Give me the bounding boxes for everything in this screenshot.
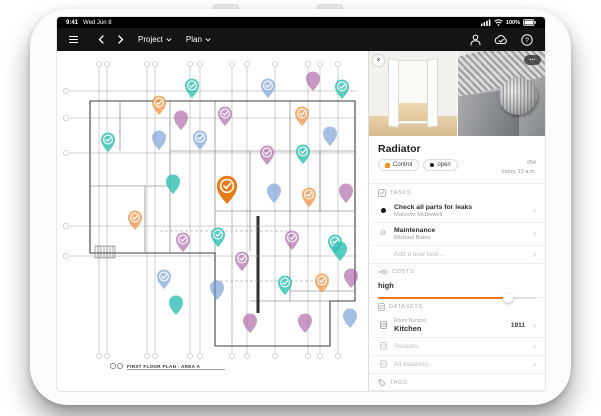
add-task-placeholder: Add a new task .. — [394, 251, 527, 258]
map-pin[interactable] — [298, 314, 312, 334]
open-tag-marker — [430, 163, 434, 167]
tasks-section-header: TASKS — [369, 183, 545, 200]
chevron-right-icon: › — [533, 250, 536, 259]
database-icon — [380, 342, 387, 350]
tags-heading: TAGS — [390, 380, 407, 386]
map-pin[interactable] — [128, 211, 142, 231]
task-assignee: Malcolm McDowell — [394, 212, 527, 218]
map-pin[interactable] — [302, 188, 316, 208]
cost-level-label: high — [369, 278, 545, 290]
user-icon[interactable] — [470, 34, 481, 46]
dataset-value: Kitchen — [394, 324, 505, 333]
plan-title: FIRST FLOOR PLAN - AREA A — [127, 364, 200, 369]
map-pin[interactable] — [243, 314, 257, 334]
floor-plan-canvas[interactable]: FIRST FLOOR PLAN - AREA A — [57, 51, 368, 391]
forward-icon[interactable] — [118, 35, 124, 44]
map-pin[interactable] — [285, 231, 299, 251]
open-tag[interactable]: open — [423, 159, 457, 171]
map-pin[interactable] — [315, 274, 329, 294]
open-tag-label: open — [437, 162, 450, 168]
help-icon[interactable]: ? — [521, 34, 533, 46]
map-pin[interactable] — [185, 79, 199, 99]
task-status-icon — [381, 208, 386, 213]
signal-icon — [481, 19, 491, 26]
more-icon[interactable]: ••• — [524, 55, 541, 65]
control-tag-label: Control — [393, 162, 412, 168]
back-icon[interactable] — [98, 35, 104, 44]
control-tag[interactable]: Control — [378, 159, 419, 171]
tags-section-header[interactable]: TAGS — [369, 373, 545, 391]
gear-icon: ⚙ — [380, 230, 386, 237]
map-pin-selected[interactable] — [217, 176, 237, 204]
database-icon — [380, 360, 387, 368]
screen: 9:41 Wed Jun 8 100% — [57, 17, 545, 391]
chevron-down-icon — [205, 38, 211, 42]
plan-dropdown-label: Plan — [186, 35, 202, 44]
costs-section-header: COSTS — [369, 263, 545, 278]
status-time: 9:41 — [66, 20, 78, 26]
database-icon — [380, 321, 387, 329]
battery-icon — [523, 19, 536, 26]
datasets-section-header: DATASETS — [369, 297, 545, 314]
dataset-row-all[interactable]: All datasets.. › — [369, 355, 545, 373]
map-pin[interactable] — [333, 242, 347, 262]
close-icon[interactable]: × — [373, 55, 384, 66]
object-card: Radiator Control open #54 — [369, 136, 545, 391]
map-pin[interactable] — [267, 184, 281, 204]
map-pin[interactable] — [339, 184, 353, 204]
object-title: Radiator — [378, 143, 536, 155]
datasets-heading: DATASETS — [389, 304, 423, 310]
svg-text:?: ? — [525, 37, 529, 44]
radiator-photo[interactable]: ••• — [458, 51, 546, 136]
add-task-row[interactable]: Add a new task .. › — [369, 245, 545, 263]
battery-percent: 100% — [506, 20, 520, 26]
task-row[interactable]: ⚙ Maintenance Michael Bates › — [369, 222, 545, 245]
map-pin[interactable] — [193, 131, 207, 151]
status-date: Wed Jun 8 — [83, 20, 112, 26]
task-row[interactable]: Check all parts for leaks Malcolm McDowe… — [369, 200, 545, 222]
map-pin[interactable] — [176, 233, 190, 253]
room-photo[interactable]: × — [369, 51, 457, 136]
project-dropdown-label: Project — [138, 35, 163, 44]
map-pin[interactable] — [101, 133, 115, 153]
plan-dropdown[interactable]: Plan — [186, 35, 211, 44]
map-pin[interactable] — [261, 79, 275, 99]
dataset-row-room[interactable]: Room Number Kitchen 1911 › — [369, 314, 545, 337]
task-title: Check all parts for leaks — [394, 204, 527, 211]
chevron-right-icon: › — [533, 321, 536, 330]
detail-panel: × ••• Radiator — [368, 51, 545, 391]
map-pin[interactable] — [260, 146, 274, 166]
slider-icon — [378, 269, 388, 275]
task-title: Maintenance — [394, 227, 527, 234]
wifi-icon — [494, 19, 503, 26]
map-pin[interactable] — [166, 175, 180, 195]
map-pin[interactable] — [174, 111, 188, 131]
tasks-heading: TASKS — [390, 190, 411, 196]
map-pin[interactable] — [169, 296, 183, 316]
tag-icon — [378, 379, 386, 387]
database-icon — [378, 303, 385, 311]
map-pin[interactable] — [152, 96, 166, 116]
chevron-right-icon: › — [533, 342, 536, 351]
object-meta: #54 today, 12 a.m. — [502, 159, 536, 178]
room-number: 1911 — [511, 322, 525, 329]
dataset-label: All datasets.. — [394, 361, 527, 368]
map-pin[interactable] — [152, 131, 166, 151]
dataset-label: Sockets.. — [394, 343, 527, 350]
map-pin[interactable] — [323, 127, 337, 147]
task-assignee: Michael Bates — [394, 235, 527, 241]
object-id: #54 — [527, 160, 536, 166]
map-pin[interactable] — [210, 281, 224, 301]
map-pin[interactable] — [157, 270, 171, 290]
tasks-icon — [378, 189, 386, 197]
top-toolbar: Project Plan — [57, 28, 545, 51]
chevron-right-icon: › — [533, 360, 536, 369]
control-tag-marker — [385, 163, 390, 168]
floor-plan-drawing: FIRST FLOOR PLAN - AREA A — [63, 61, 357, 369]
map-pin[interactable] — [218, 107, 232, 127]
tablet-device: 9:41 Wed Jun 8 100% — [30, 9, 571, 405]
chevron-down-icon — [166, 38, 172, 42]
photo-strip: × ••• — [369, 51, 545, 136]
menu-icon[interactable] — [69, 36, 78, 43]
object-time: today, 12 a.m. — [502, 169, 536, 175]
map-pin[interactable] — [335, 80, 349, 100]
slider-thumb[interactable] — [503, 293, 513, 303]
map-pin[interactable] — [344, 269, 358, 289]
map-pin[interactable] — [343, 309, 357, 329]
dataset-row-sockets[interactable]: Sockets.. › — [369, 337, 545, 355]
cloud-sync-icon[interactable] — [494, 34, 508, 45]
map-pin[interactable] — [211, 228, 225, 248]
project-dropdown[interactable]: Project — [138, 35, 172, 44]
costs-heading: COSTS — [392, 269, 414, 275]
status-bar: 9:41 Wed Jun 8 100% — [57, 17, 545, 28]
chevron-right-icon: › — [533, 229, 536, 238]
chevron-right-icon: › — [533, 206, 536, 215]
map-pin[interactable] — [295, 107, 309, 127]
slider-fill — [378, 297, 508, 299]
